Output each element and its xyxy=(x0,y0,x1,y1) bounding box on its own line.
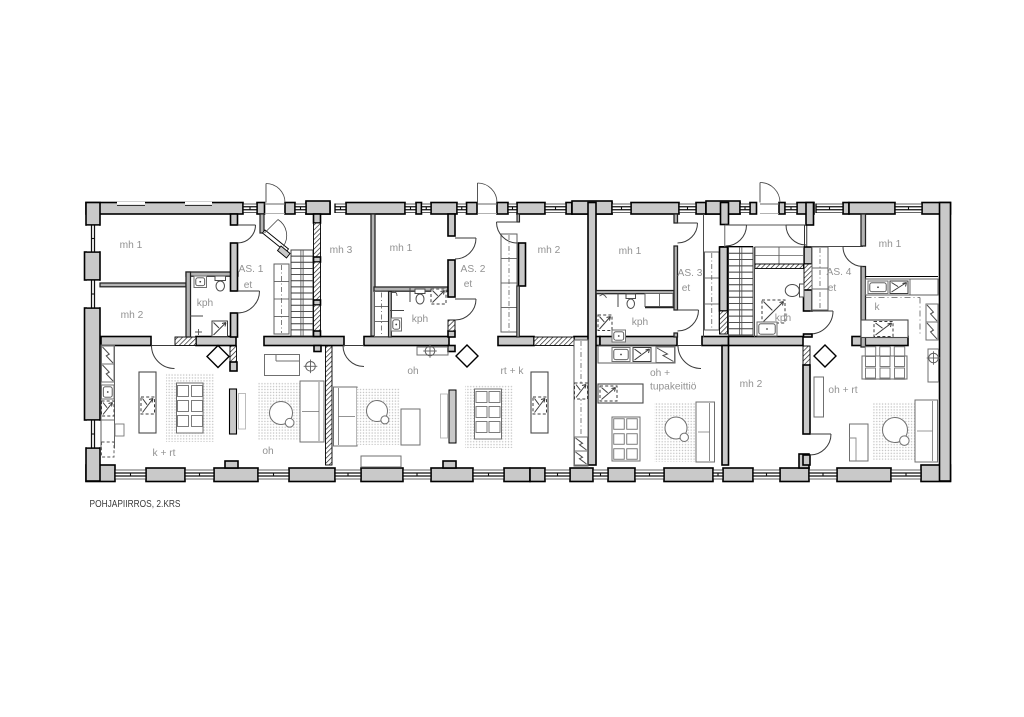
svg-text:mh 1: mh 1 xyxy=(879,239,902,250)
svg-text:rt + k: rt + k xyxy=(501,366,525,377)
svg-text:et: et xyxy=(682,283,691,294)
svg-text:et: et xyxy=(464,279,473,290)
svg-text:mh 1: mh 1 xyxy=(120,240,143,251)
svg-text:et: et xyxy=(244,280,253,291)
svg-text:mh 1: mh 1 xyxy=(390,243,413,254)
svg-text:mh 2: mh 2 xyxy=(121,310,144,321)
svg-text:AS. 2: AS. 2 xyxy=(461,264,486,275)
svg-text:kph: kph xyxy=(632,317,648,328)
svg-text:mh 2: mh 2 xyxy=(538,245,561,256)
svg-text:k + rt: k + rt xyxy=(153,448,176,459)
svg-text:kph: kph xyxy=(775,313,791,324)
svg-text:oh + rt: oh + rt xyxy=(828,385,857,396)
svg-text:mh 3: mh 3 xyxy=(330,245,353,256)
svg-text:AS. 3: AS. 3 xyxy=(678,268,703,279)
svg-text:oh +: oh + xyxy=(650,368,670,379)
svg-text:tupakeittiö: tupakeittiö xyxy=(650,382,697,393)
svg-text:mh 2: mh 2 xyxy=(740,379,763,390)
svg-text:POHJAPIIRROS, 2.KRS: POHJAPIIRROS, 2.KRS xyxy=(90,499,181,510)
svg-text:oh: oh xyxy=(407,366,418,377)
svg-text:oh: oh xyxy=(262,446,273,457)
svg-text:kph: kph xyxy=(197,298,213,309)
svg-text:mh 1: mh 1 xyxy=(619,246,642,257)
svg-text:AS. 1: AS. 1 xyxy=(239,264,264,275)
svg-text:et: et xyxy=(828,283,837,294)
svg-text:kph: kph xyxy=(412,314,428,325)
svg-text:AS. 4: AS. 4 xyxy=(827,267,852,278)
